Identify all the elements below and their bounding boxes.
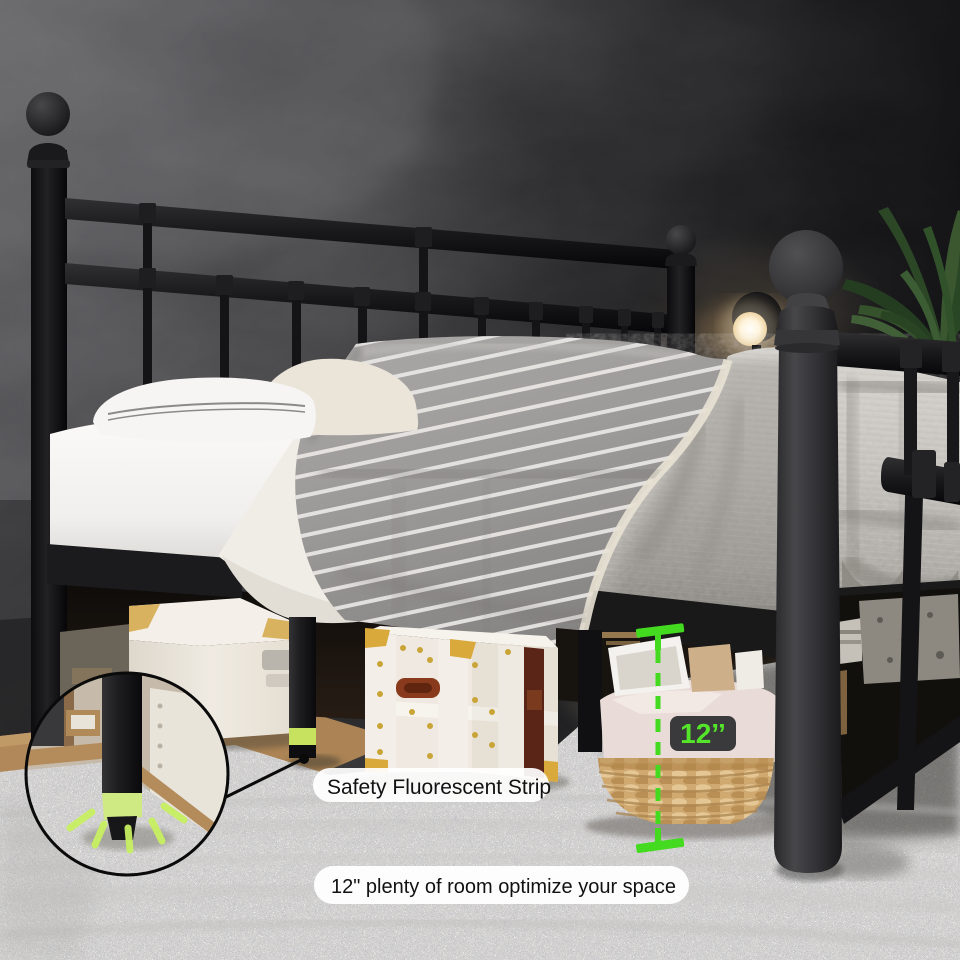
svg-text:12’’: 12’’ [680, 718, 726, 749]
svg-text:Safety Fluorescent Strip: Safety Fluorescent Strip [327, 776, 551, 799]
svg-text:12" plenty of room optimize yo: 12" plenty of room optimize your space [331, 876, 676, 898]
